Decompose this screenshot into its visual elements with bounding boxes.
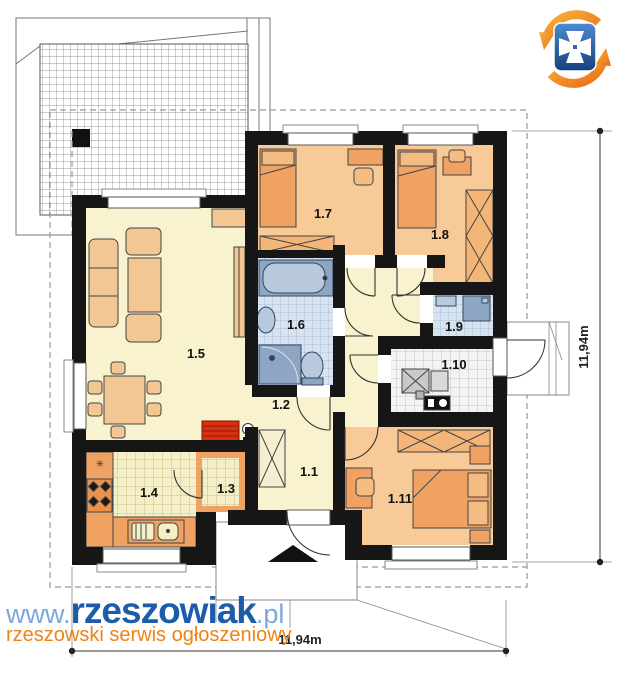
pillow: [468, 501, 488, 525]
room-label-1-2: 1.2: [272, 397, 290, 412]
pillow: [468, 473, 488, 497]
nightstand: [470, 446, 490, 464]
side-steps: [507, 322, 569, 395]
room-label-1-6: 1.6: [287, 317, 305, 332]
terrace-door: [74, 363, 86, 429]
room-label-1-4: 1.4: [140, 485, 159, 500]
toilet: [301, 352, 323, 380]
shower: [259, 345, 301, 384]
room-label-1-7: 1.7: [314, 206, 332, 221]
sideboard: [212, 209, 249, 227]
room-label-1-11: 1.11: [388, 491, 413, 506]
armchair: [126, 314, 161, 342]
floorplan-page: 1.1 1.2 1.3 1.4 1.5 1.6 1.7 1.8 1.9 1.10…: [0, 0, 623, 675]
room-label-1-5: 1.5: [187, 346, 205, 361]
sofa: [89, 239, 118, 327]
wardrobe: [466, 190, 493, 283]
side-door-opening: [493, 338, 507, 376]
coffee-table: [128, 258, 161, 312]
dimension-label-right: 11,94m: [576, 325, 591, 368]
entrance-door-opening: [287, 510, 330, 525]
washbasin: [257, 307, 275, 333]
watermark[interactable]: www.rzeszowiak.pl rzeszowski serwis ogło…: [6, 592, 292, 645]
window-sill: [102, 189, 206, 197]
window-living: [108, 197, 200, 208]
fridge-symbol: ✳: [96, 459, 104, 470]
desk: [348, 149, 383, 165]
room-label-1-1: 1.1: [300, 464, 318, 479]
room-label-1-10: 1.10: [441, 357, 466, 372]
window-sill: [97, 564, 186, 572]
dining-table: [104, 376, 145, 424]
watermark-tagline: rzeszowski serwis ogłoszeniowy: [6, 625, 292, 645]
chimney: [72, 129, 90, 147]
window-sill: [64, 360, 73, 432]
room-label-1-9: 1.9: [445, 319, 463, 334]
window-bedroom-1-7: [288, 133, 353, 145]
room-label-1-3: 1.3: [217, 481, 235, 496]
window-kitchen: [103, 549, 180, 563]
window-sill: [385, 561, 477, 569]
window-bedroom-1-8: [408, 133, 473, 145]
window-bedroom-1-11: [392, 547, 470, 560]
nightstand: [470, 530, 490, 543]
chair: [356, 478, 374, 496]
hall-furniture: [259, 430, 285, 487]
armchair: [126, 228, 161, 255]
rzeszowiak-logo: [534, 8, 616, 90]
room-label-1-8: 1.8: [431, 227, 449, 242]
logo-shield: [554, 23, 596, 71]
tank: [431, 371, 448, 391]
chair: [354, 168, 373, 185]
small-basin: [436, 296, 456, 306]
floorplan-drawing: 1.1 1.2 1.3 1.4 1.5 1.6 1.7 1.8 1.9 1.10…: [0, 0, 623, 675]
window-sill: [403, 125, 478, 133]
window-sill: [283, 125, 358, 133]
chair: [449, 150, 465, 162]
